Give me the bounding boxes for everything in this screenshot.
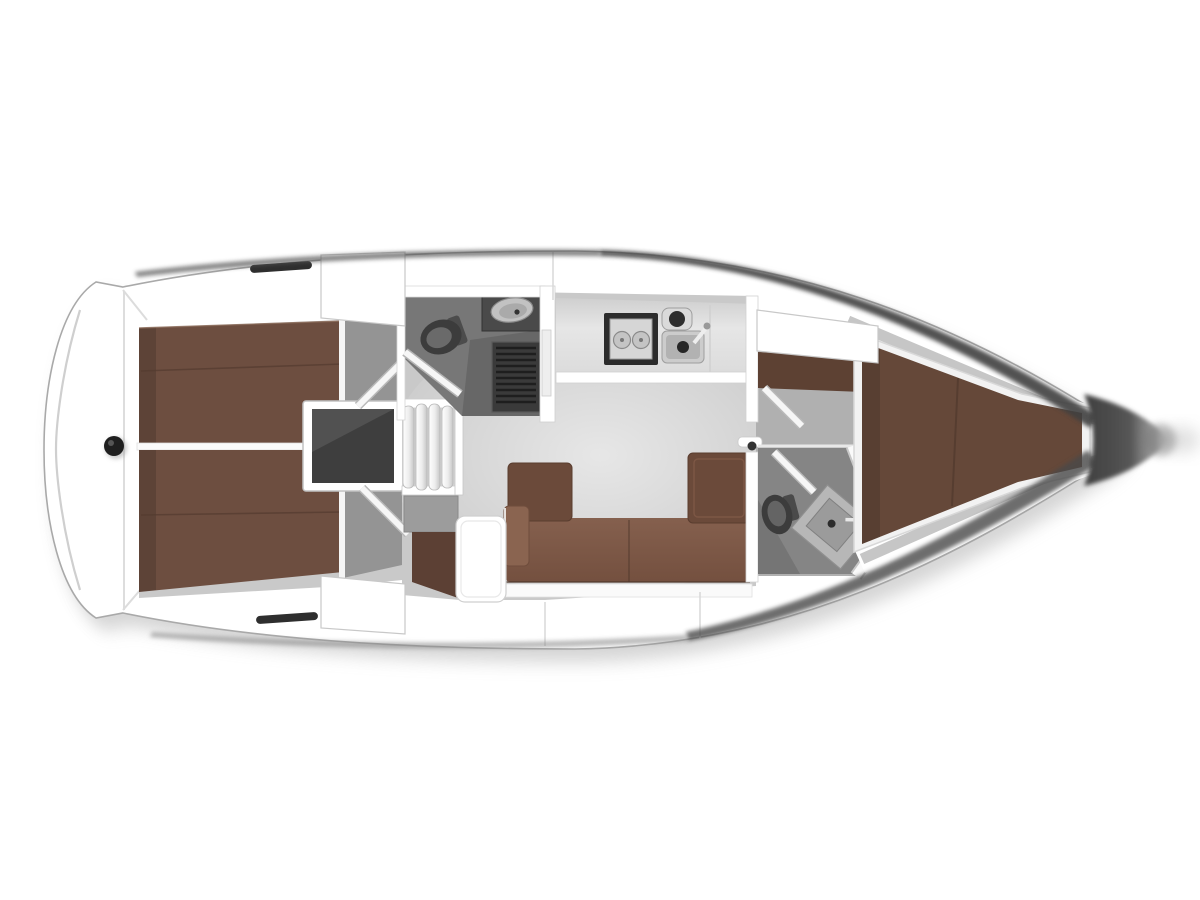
floorplan-svg [0,0,1200,900]
sink-drain [677,341,689,353]
bulkhead-upper [746,296,758,422]
yacht-floorplan-image [0,0,1200,900]
shower-grate [492,342,540,412]
step [416,404,427,490]
settee-seat [506,518,750,582]
bulkhead-lower [746,452,758,582]
step [429,404,440,490]
deck-box-bottom [321,576,405,634]
basin-drain [514,309,519,314]
step [442,406,453,488]
galley-front [556,372,756,383]
settee-front-panel [504,584,752,597]
backstay-fitting [104,436,124,456]
small-sink-bowl [669,311,685,327]
burner-center [620,338,624,342]
aft-head-door-leaf [542,330,551,396]
burner-center [639,338,643,342]
faucet-base [704,323,711,330]
engine-compartment [303,401,403,491]
aft-head-wall-top [398,286,545,297]
berth-shade [139,327,156,443]
stove [604,313,658,365]
settee-armrest [504,506,529,566]
fitting-highlight [108,440,114,446]
door-latch [748,442,757,451]
nav-table [456,516,506,602]
settee-backrest-right [688,453,750,523]
nav-cabinet [404,496,458,532]
vberth-shade [862,342,880,544]
deck-box-top [321,252,405,326]
bow-tip-shadow [1160,427,1200,453]
berth-shade [139,450,156,592]
galley [556,298,756,383]
